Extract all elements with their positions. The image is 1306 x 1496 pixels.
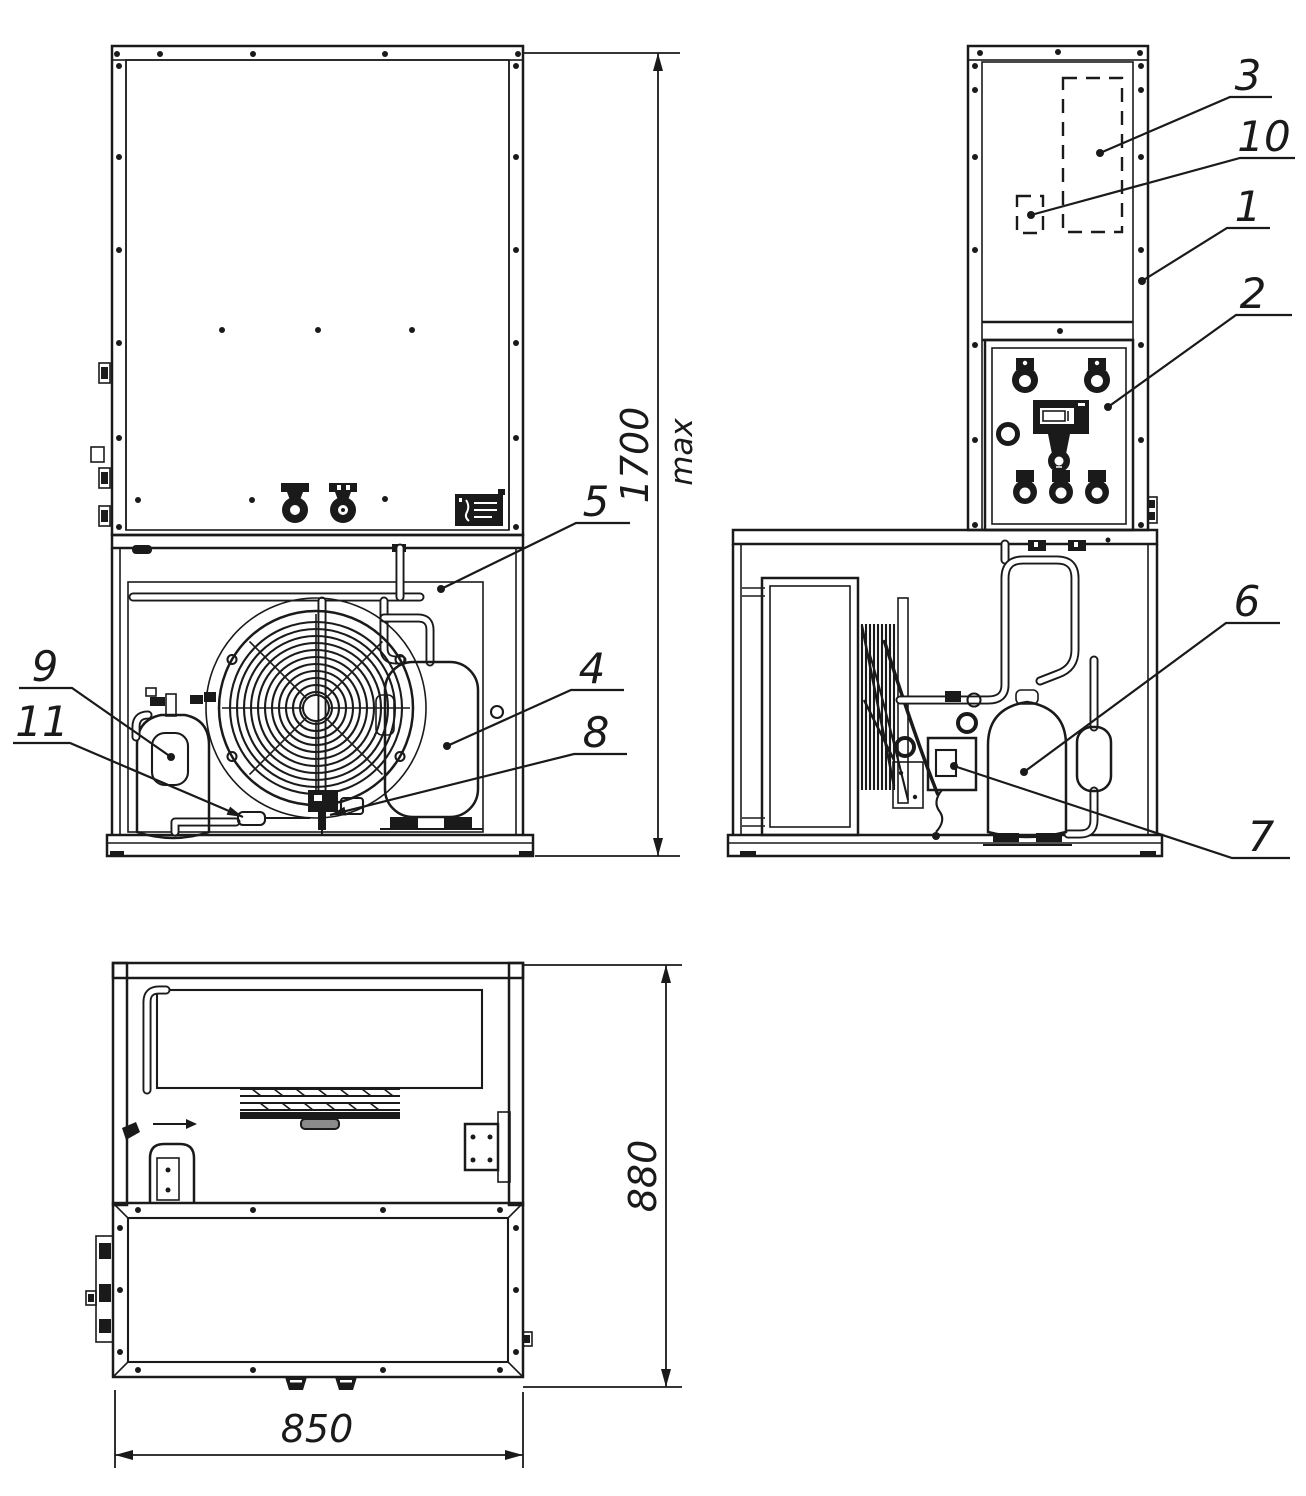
liquid-receiver	[136, 688, 216, 838]
callout-3-label: 3	[1235, 51, 1262, 100]
fan-louvers-top	[240, 1089, 400, 1129]
panel-valve-fittings	[281, 483, 357, 523]
screw-dots	[117, 1207, 519, 1373]
condenser-outline-top	[157, 990, 482, 1088]
machine-compartment-front	[107, 535, 533, 857]
callout-2-label: 2	[1240, 269, 1267, 318]
front-view	[91, 46, 533, 857]
callout-7: 7	[950, 762, 1290, 861]
callout-11-label: 11	[15, 697, 68, 746]
panel-button	[999, 425, 1018, 444]
right-side-tab	[523, 1332, 532, 1346]
dashed-cutout-large	[1063, 78, 1122, 232]
cable-gland-top-left	[1012, 358, 1038, 393]
callout-4-label: 4	[579, 644, 606, 693]
bottom-cable-glands	[285, 1377, 357, 1390]
electrical-panel	[982, 322, 1133, 530]
callout-9-label: 9	[32, 642, 59, 691]
nameplate	[455, 489, 505, 526]
side-view	[728, 46, 1162, 857]
callout-8-label: 8	[583, 708, 610, 757]
depth-dimension-value: 880	[621, 1140, 665, 1213]
junction-box	[928, 738, 976, 840]
machine-compartment-side	[728, 530, 1162, 857]
side-hinges-top-view	[86, 1236, 113, 1342]
compressor-front	[376, 662, 503, 829]
height-dimension: 1700 max	[523, 53, 700, 856]
depth-dimension: 880	[523, 965, 682, 1387]
controller-display	[1033, 400, 1089, 434]
top-view	[86, 963, 532, 1390]
top-cover-panel	[86, 1203, 532, 1390]
height-dimension-value: 1700	[613, 407, 657, 504]
cable-gland-top-right	[1084, 358, 1110, 393]
callout-5-label: 5	[583, 477, 610, 526]
condenser-coil-side	[742, 578, 938, 835]
callout-6-label: 6	[1234, 577, 1261, 626]
compressor-side	[983, 690, 1072, 845]
height-dimension-qualifier: max	[664, 418, 700, 486]
condensing-unit-drawing: 1700 max 880 850 3 10 1 2	[0, 0, 1306, 1496]
screw-dots	[114, 51, 521, 530]
filter-drier	[238, 812, 265, 825]
fan-grille	[222, 614, 410, 802]
suction-accumulator	[1077, 727, 1111, 791]
callout-7-label: 7	[1248, 812, 1275, 861]
condenser-fan	[206, 598, 426, 818]
upper-cabinet-front	[91, 46, 523, 535]
technical-drawing-canvas: 1700 max 880 850 3 10 1 2	[0, 0, 1306, 1496]
door-hinges	[91, 363, 110, 526]
width-dimension-value: 850	[281, 1407, 354, 1451]
cabinet-side-tab	[1148, 497, 1157, 523]
power-plug	[1048, 434, 1070, 472]
cable-glands-bottom	[1013, 470, 1109, 504]
top-frame	[113, 963, 523, 1205]
width-dimension: 850	[115, 1390, 523, 1468]
pipes-top-view	[122, 990, 197, 1203]
callout-10-label: 10	[1237, 112, 1290, 161]
callout-1-label: 1	[1235, 182, 1262, 231]
mounting-bracket-top	[465, 1112, 510, 1182]
